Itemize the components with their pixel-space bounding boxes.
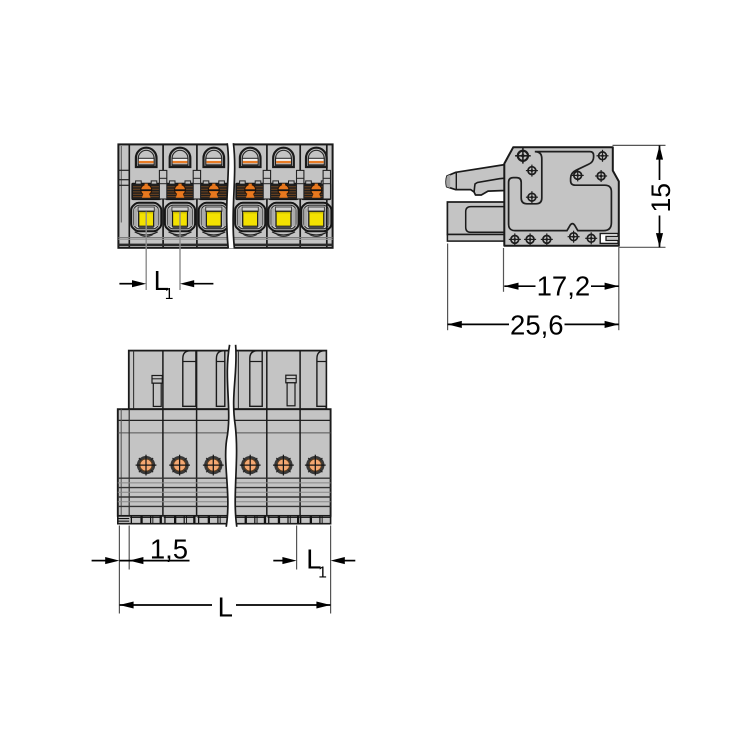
svg-text:1: 1 bbox=[165, 286, 174, 303]
svg-text:15: 15 bbox=[646, 183, 676, 212]
svg-text:1,5: 1,5 bbox=[150, 533, 188, 564]
svg-text:L: L bbox=[218, 592, 233, 623]
svg-text:25,6: 25,6 bbox=[510, 310, 564, 341]
svg-text:1: 1 bbox=[318, 565, 327, 582]
svg-text:17,2: 17,2 bbox=[537, 270, 591, 301]
